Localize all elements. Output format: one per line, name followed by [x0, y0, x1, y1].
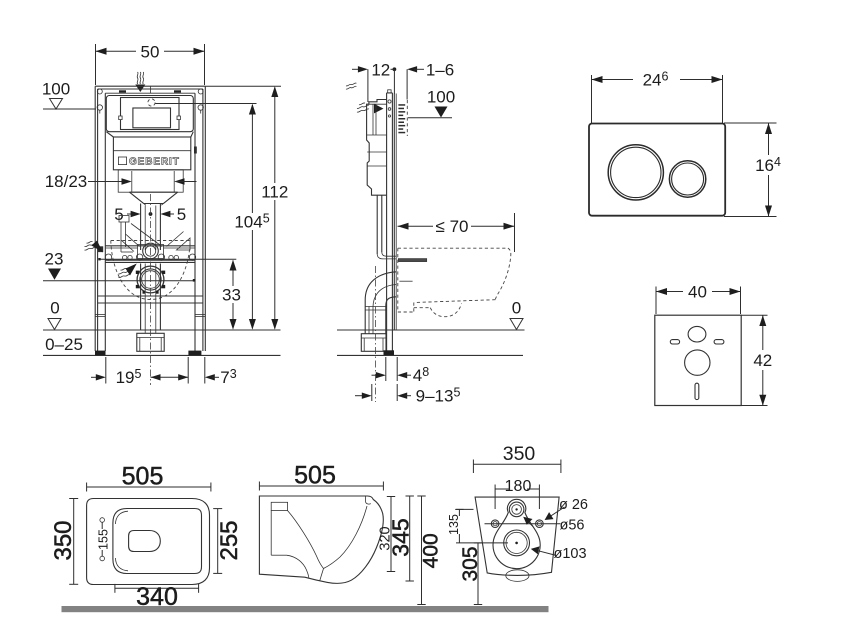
svg-text:5: 5: [177, 205, 186, 224]
svg-text:180: 180: [505, 478, 532, 495]
svg-text:0–25: 0–25: [45, 335, 83, 354]
svg-text:1–6: 1–6: [426, 60, 454, 79]
svg-text:350: 350: [503, 443, 536, 465]
svg-text:ø56: ø56: [560, 518, 585, 534]
svg-text:42: 42: [753, 351, 772, 370]
svg-text:ø 26: ø 26: [559, 497, 588, 513]
svg-text:0: 0: [512, 299, 521, 318]
svg-text:≤ 70: ≤ 70: [436, 217, 469, 236]
svg-text:345: 345: [388, 518, 414, 556]
svg-text:135: 135: [447, 514, 461, 535]
svg-text:505: 505: [122, 463, 164, 491]
svg-text:112: 112: [261, 183, 288, 202]
svg-text:400: 400: [420, 533, 443, 568]
svg-text:155: 155: [97, 529, 111, 550]
svg-text:0: 0: [50, 299, 59, 318]
svg-text:23: 23: [45, 250, 64, 269]
svg-text:305: 305: [459, 546, 482, 581]
svg-text:50: 50: [141, 42, 160, 61]
svg-text:255: 255: [216, 520, 243, 560]
svg-text:18/23: 18/23: [45, 172, 88, 191]
svg-text:12: 12: [371, 60, 390, 79]
svg-text:100: 100: [42, 80, 70, 99]
svg-text:100: 100: [427, 88, 455, 107]
svg-text:ø103: ø103: [553, 546, 586, 562]
svg-text:GEBERIT: GEBERIT: [129, 156, 180, 167]
svg-text:33: 33: [222, 286, 241, 305]
svg-text:350: 350: [50, 520, 77, 560]
svg-text:40: 40: [688, 282, 707, 301]
svg-text:505: 505: [294, 462, 336, 490]
